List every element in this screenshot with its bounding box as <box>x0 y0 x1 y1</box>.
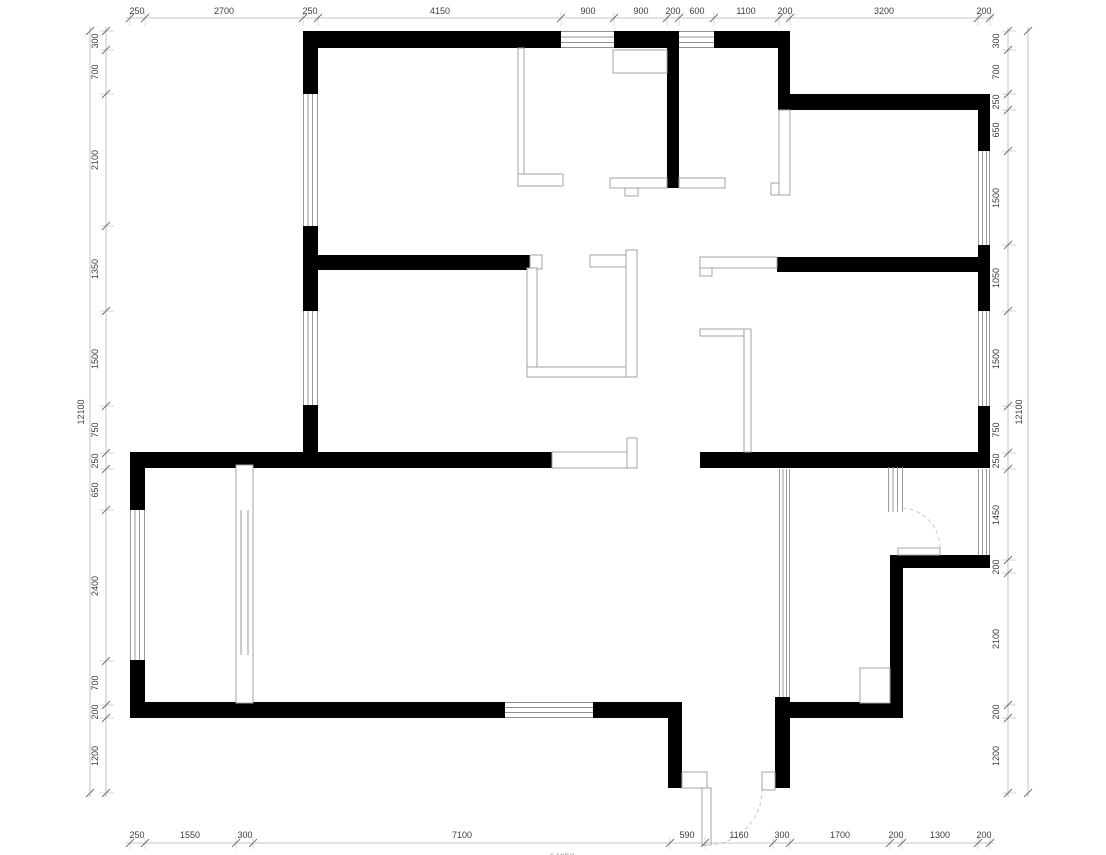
partition-wing-left <box>779 110 790 195</box>
wall-mid-a-left <box>318 255 530 270</box>
closet-bottom <box>527 367 637 377</box>
dim-label: 650 <box>991 122 1001 137</box>
partition-wing-notch <box>771 183 779 195</box>
wall-step-horizontal <box>890 555 990 568</box>
wall-mid-b-right <box>700 452 990 468</box>
dim-label: 1300 <box>930 830 950 840</box>
wall-mid-b-light <box>552 452 627 468</box>
partition-bed1-foot <box>518 174 563 186</box>
window-bottom <box>505 703 593 718</box>
wall-entry-left <box>668 702 682 788</box>
wall-step-vertical <box>890 555 903 718</box>
window-right-lower <box>979 469 990 555</box>
dim-label: 200 <box>991 559 1001 574</box>
dim-label: 1350 <box>90 259 100 279</box>
window-left-lower <box>131 510 145 660</box>
dim-label: 200 <box>888 830 903 840</box>
dim-label: 1200 <box>991 746 1001 766</box>
dim-label: 300 <box>237 830 252 840</box>
dim-label: 200 <box>665 6 680 16</box>
doorframe-entry-right <box>762 772 775 790</box>
dim-label: 700 <box>90 64 100 79</box>
door-swing-balcony <box>900 508 940 548</box>
wall-wing-top <box>778 94 990 110</box>
partition-bath-south-2 <box>679 178 725 188</box>
dim-label: 200 <box>90 704 100 719</box>
wall-bottom-1 <box>130 702 505 718</box>
wall-left-upper <box>303 226 318 311</box>
dim-label: 3200 <box>874 6 894 16</box>
partition-balcony <box>236 465 253 703</box>
dim-total-left: 12100 <box>76 399 86 424</box>
dim-label: 250 <box>90 453 100 468</box>
dim-label: 2100 <box>991 629 1001 649</box>
dim-label: 2700 <box>214 6 234 16</box>
dim-label: 1200 <box>90 746 100 766</box>
wall-right-1 <box>978 110 990 151</box>
dim-label: 900 <box>633 6 648 16</box>
dim-label: 750 <box>991 422 1001 437</box>
dim-label: 1450 <box>991 505 1001 525</box>
wall-mid-b-left <box>130 452 555 468</box>
dim-label: 250 <box>991 453 1001 468</box>
door-leaf-balcony <box>898 548 940 555</box>
dim-label: 700 <box>991 64 1001 79</box>
dim-total-right: 12100 <box>1014 399 1024 424</box>
window-right-mid <box>979 311 990 406</box>
dim-label: 200 <box>976 830 991 840</box>
dim-label: 200 <box>777 6 792 16</box>
closet-right-side <box>626 250 637 377</box>
dim-label: 1050 <box>991 268 1001 288</box>
wall-bottom-right <box>775 702 903 718</box>
wall-top-2 <box>614 31 667 48</box>
window-top-left <box>561 32 614 48</box>
dim-stubs-left <box>100 31 114 793</box>
floorplan-sheet: 250 2700 250 4150 900 900 200 600 1100 2… <box>0 0 1106 855</box>
wall-topleft-post <box>303 31 318 94</box>
dim-label: 1500 <box>991 188 1001 208</box>
dim-label: 250 <box>991 94 1001 109</box>
wall-mid-b-step <box>627 438 637 468</box>
dim-label: 250 <box>129 830 144 840</box>
dim-label: 1500 <box>90 349 100 369</box>
partition-bath2-side <box>744 329 751 452</box>
door-leaf-entry <box>702 788 711 845</box>
cabinet-entry <box>860 668 890 703</box>
dim-label: 600 <box>689 6 704 16</box>
partition-hall-notch <box>700 268 712 276</box>
dim-label: 200 <box>991 704 1001 719</box>
dim-label: 1700 <box>830 830 850 840</box>
wall-top-1 <box>303 31 561 48</box>
dim-label: 7100 <box>452 830 472 840</box>
window-top-right <box>679 32 714 48</box>
wall-topright-post <box>778 48 790 94</box>
dim-label: 590 <box>679 830 694 840</box>
dim-label: 1550 <box>180 830 200 840</box>
dim-label: 1100 <box>736 6 755 16</box>
dim-label: 1160 <box>729 830 748 840</box>
closet-top-stub <box>590 255 626 267</box>
dim-label: 200 <box>976 6 991 16</box>
wall-mid-a-right <box>777 257 990 272</box>
floorplan-drawing: 250 2700 250 4150 900 900 200 600 1100 2… <box>0 0 1106 855</box>
dim-label: 750 <box>90 422 100 437</box>
dim-label: 4150 <box>430 6 450 16</box>
dim-label: 300 <box>991 33 1001 48</box>
dim-label: 300 <box>774 830 789 840</box>
dim-label: 650 <box>90 482 100 497</box>
dimension-chain-top: 250 2700 250 4150 900 900 200 600 1100 2… <box>126 6 994 26</box>
window-left-mid <box>304 311 318 405</box>
wall-right-2 <box>978 245 990 311</box>
dim-label: 250 <box>302 6 317 16</box>
doorframe-entry-left <box>682 772 707 788</box>
window-right-upper <box>979 151 990 245</box>
partition-bath2-top <box>700 329 750 336</box>
closet-left-side <box>527 268 537 372</box>
dim-label: 300 <box>90 33 100 48</box>
dim-label: 2400 <box>90 576 100 596</box>
partition-bath-south-1 <box>610 178 667 188</box>
dim-label: 700 <box>90 675 100 690</box>
dimension-chain-left: 300 700 2100 1350 1500 750 250 650 2400 … <box>76 27 114 797</box>
dim-label: 250 <box>129 6 144 16</box>
partition-bath-notch <box>625 188 638 196</box>
dim-label: 900 <box>580 6 595 16</box>
glazing-kitchen <box>780 469 790 697</box>
partition-hall-right <box>700 257 777 268</box>
partition-bed1-right <box>518 48 524 180</box>
dimension-chain-right: 300 700 250 650 1500 1050 1500 750 250 1… <box>991 27 1032 797</box>
window-left-upper <box>304 94 318 226</box>
doorframe-hall <box>530 255 542 269</box>
dim-label: 2100 <box>90 150 100 170</box>
wall-top-3 <box>714 31 790 48</box>
cabinet-top <box>613 50 667 73</box>
wall-top-divider <box>667 31 679 188</box>
dim-label: 1500 <box>991 349 1001 369</box>
dimension-chain-bottom: 250 1550 300 7100 590 1160 300 1700 200 … <box>126 830 994 855</box>
light-partitions <box>236 48 890 790</box>
glazing-balcony-door <box>889 467 903 512</box>
